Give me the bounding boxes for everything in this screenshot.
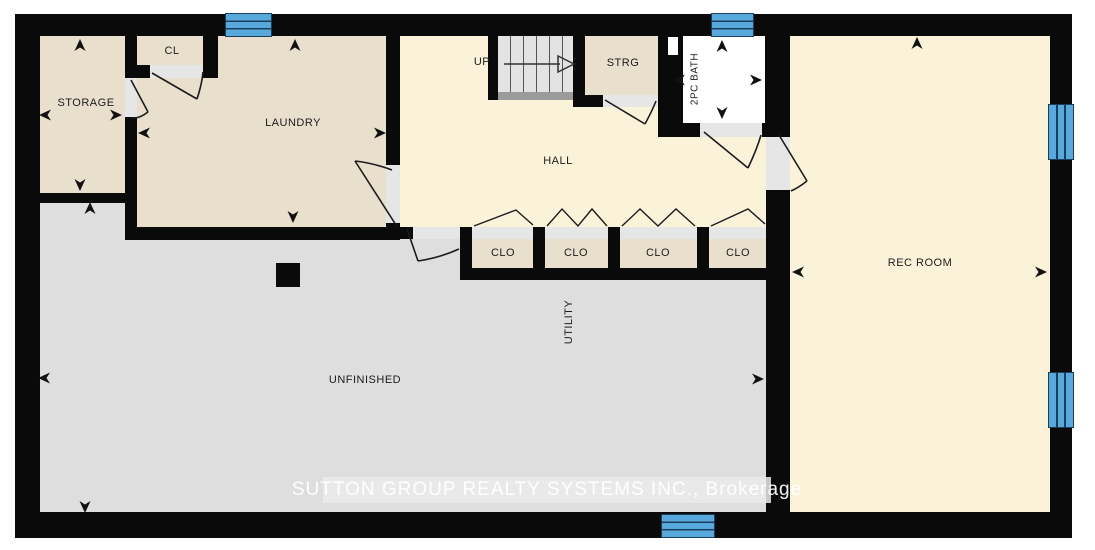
hall-utility-door-opening xyxy=(413,227,460,239)
rec-room-label: REC ROOM xyxy=(888,257,953,269)
window-right-upper xyxy=(1048,104,1074,160)
wall-bath-right xyxy=(765,36,790,137)
bath-room-label: 2PC BATH xyxy=(690,53,701,105)
clo2-opening xyxy=(545,227,608,239)
hall-rec-door-opening xyxy=(766,137,790,190)
wall-laundry-bottom xyxy=(137,227,400,240)
window-bottom xyxy=(661,514,715,538)
bath-wall-notch xyxy=(668,37,678,55)
bath-door-opening xyxy=(700,123,762,137)
laundry-room-floor-left xyxy=(137,78,218,227)
wall-clo-bottom xyxy=(460,268,766,280)
wall-left xyxy=(15,14,40,538)
strg-room-label: STRG xyxy=(607,57,640,69)
wall-bottom xyxy=(15,512,1072,538)
wall-cl-right xyxy=(203,36,218,78)
clo1-label: CLO xyxy=(491,247,515,259)
clo2-label: CLO xyxy=(564,247,588,259)
cl-door-opening xyxy=(150,65,203,78)
wall-stairs-left xyxy=(488,36,498,100)
support-column xyxy=(276,263,300,287)
wall-strg-bottom xyxy=(573,95,603,107)
utility-label: UTILITY xyxy=(563,300,575,344)
cl-closet-label: CL xyxy=(164,45,179,57)
wall-storage-laundry-upper xyxy=(125,36,137,78)
clo1-opening xyxy=(472,227,533,239)
unfinished-floor-a xyxy=(37,203,125,512)
clo4-label: CLO xyxy=(726,247,750,259)
laundry-room-floor-main xyxy=(218,36,386,227)
staircase-landing xyxy=(498,92,573,100)
wall-right xyxy=(1050,14,1072,538)
unfinished-floor-c xyxy=(400,239,460,512)
staircase xyxy=(498,36,573,92)
stairs-up-label: UP xyxy=(474,56,490,68)
hall-label: HALL xyxy=(543,155,573,167)
unfinished-label: UNFINISHED xyxy=(329,374,401,386)
wall-storage-laundry-lower xyxy=(125,117,137,240)
brokerage-watermark: SUTTON GROUP REALTY SYSTEMS INC., Broker… xyxy=(323,477,771,503)
wall-cl-bottom xyxy=(137,65,150,78)
laundry-door-opening xyxy=(386,165,400,223)
clo3-label: CLO xyxy=(646,247,670,259)
wall-laundry-right-upper xyxy=(386,36,400,165)
strg-door-opening xyxy=(603,95,658,107)
floorplan-canvas: STORAGE CL LAUNDRY UP STRG 2PC BATH HALL… xyxy=(0,0,1095,550)
wall-bath-bottom-left xyxy=(658,123,700,137)
clo3-opening xyxy=(620,227,697,239)
storage-room-floor xyxy=(40,36,125,193)
window-right-lower xyxy=(1048,372,1074,428)
rec-room-floor xyxy=(790,36,1050,512)
wall-hall-bottom-left xyxy=(400,227,413,239)
wall-top xyxy=(15,14,1072,36)
storage-door-opening xyxy=(125,78,137,117)
wall-hall-rec-divider xyxy=(766,190,790,512)
window-top-bath xyxy=(711,13,754,37)
wall-storage-bottom xyxy=(37,193,137,203)
storage-room-label: STORAGE xyxy=(57,97,114,109)
clo4-opening xyxy=(709,227,766,239)
laundry-room-label: LAUNDRY xyxy=(265,117,321,129)
window-top-laundry xyxy=(225,13,272,37)
wall-stairs-right xyxy=(573,36,585,100)
